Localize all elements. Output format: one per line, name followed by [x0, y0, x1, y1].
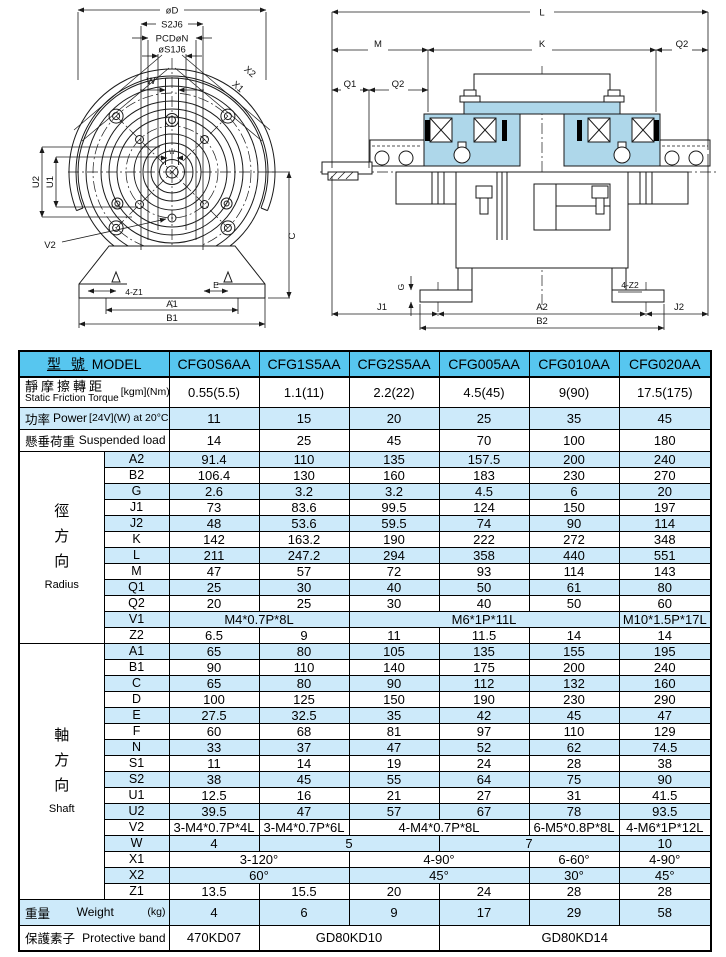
- value-cell: 45: [259, 771, 349, 787]
- table-header-row: 型 號 MODEL CFG0S6AA CFG1S5AA CFG2S5AA CFG…: [19, 351, 711, 377]
- value-cell: 4-90°: [349, 851, 529, 867]
- dimension-row: D100125150190230290: [19, 691, 711, 707]
- value-cell: 45°: [349, 867, 529, 883]
- param-cell: V1: [104, 611, 169, 627]
- value-cell: 440: [529, 547, 619, 563]
- value-cell: 90: [619, 771, 711, 787]
- value-cell: 358: [439, 547, 529, 563]
- value-cell: 91.4: [169, 451, 259, 467]
- value-cell: 12.5: [169, 787, 259, 803]
- value-cell: 32.5: [259, 707, 349, 723]
- value-cell: M4*0.7P*8L: [169, 611, 349, 627]
- dim-label-u2: U2: [31, 176, 42, 188]
- dim-label-4z2: 4-Z2: [621, 280, 639, 290]
- value-cell: M10*1.5P*17L: [619, 611, 711, 627]
- value-cell: 47: [349, 739, 439, 755]
- value-cell: 105: [349, 643, 439, 659]
- value-cell: 20: [169, 595, 259, 611]
- value-cell: 150: [349, 691, 439, 707]
- param-cell: J1: [104, 499, 169, 515]
- value-cell: 0.55(5.5): [169, 377, 259, 407]
- row-label: 懸垂荷重Suspended load: [19, 429, 169, 451]
- dim-label-k: K: [539, 39, 546, 50]
- value-cell: 20: [349, 407, 439, 429]
- value-cell: 45°: [619, 867, 711, 883]
- param-cell: W: [104, 835, 169, 851]
- value-cell: 4.5: [439, 483, 529, 499]
- value-cell: 40: [349, 579, 439, 595]
- spec-row: 功率Power[24V](W) at 20°C111520253545: [19, 407, 711, 429]
- value-cell: 4.5(45): [439, 377, 529, 407]
- dim-label-x2: X2: [242, 64, 258, 80]
- value-cell: 11: [169, 755, 259, 771]
- spec-table: 型 號 MODEL CFG0S6AA CFG1S5AA CFG2S5AA CFG…: [18, 350, 712, 952]
- dim-label-s2j6: S2J6: [161, 20, 183, 31]
- dimension-row: S2384555647590: [19, 771, 711, 787]
- value-cell: 3.2: [259, 483, 349, 499]
- value-cell: 60: [619, 595, 711, 611]
- value-cell: 35: [529, 407, 619, 429]
- value-cell: 114: [619, 515, 711, 531]
- value-cell: 50: [439, 579, 529, 595]
- value-cell: 142: [169, 531, 259, 547]
- value-cell: 200: [529, 659, 619, 675]
- value-cell: 272: [529, 531, 619, 547]
- value-cell: 155: [529, 643, 619, 659]
- value-cell: 240: [619, 659, 711, 675]
- value-cell: 114: [529, 563, 619, 579]
- value-cell: 17: [439, 899, 529, 925]
- value-cell: 42: [439, 707, 529, 723]
- value-cell: 28: [529, 755, 619, 771]
- dimension-row: Q2202530405060: [19, 595, 711, 611]
- dim-label-s1j6: øS1J6: [158, 45, 185, 56]
- value-cell: 35: [349, 707, 439, 723]
- value-cell: 270: [619, 467, 711, 483]
- value-cell: 30: [259, 579, 349, 595]
- value-cell: 175: [439, 659, 529, 675]
- value-cell: 80: [259, 643, 349, 659]
- value-cell: 58: [619, 899, 711, 925]
- dim-label-od: øD: [166, 6, 179, 17]
- value-cell: 38: [619, 755, 711, 771]
- value-cell: 65: [169, 675, 259, 691]
- dimension-row: 徑方向RadiusA291.4110135157.5200240: [19, 451, 711, 467]
- dimension-row: Z113.515.520242828: [19, 883, 711, 899]
- value-cell: 47: [169, 563, 259, 579]
- dimension-row: Q1253040506180: [19, 579, 711, 595]
- value-cell: 70: [439, 429, 529, 451]
- protective-band-row: 保護素子Protective band470KD07GD80KD10GD80KD…: [19, 925, 711, 951]
- dim-label-g: G: [396, 284, 406, 291]
- dim-label-m: M: [374, 39, 382, 50]
- dim-label-v2: V2: [44, 240, 56, 251]
- section-label: 徑方向Radius: [19, 451, 104, 643]
- value-cell: 28: [619, 883, 711, 899]
- value-cell: 68: [259, 723, 349, 739]
- value-cell: 21: [349, 787, 439, 803]
- value-cell: 294: [349, 547, 439, 563]
- value-cell: 93.5: [619, 803, 711, 819]
- value-cell: 74: [439, 515, 529, 531]
- value-cell: 230: [529, 691, 619, 707]
- value-cell: 230: [529, 467, 619, 483]
- value-cell: 124: [439, 499, 529, 515]
- side-view-labels: L M K Q2 Q1 Q2 G J1 A2 4-Z2 J2 B2: [344, 8, 689, 328]
- value-cell: 16: [259, 787, 349, 803]
- model-column-header: CFG020AA: [619, 351, 711, 377]
- param-cell: E: [104, 707, 169, 723]
- param-cell: K: [104, 531, 169, 547]
- value-cell: 190: [439, 691, 529, 707]
- value-cell: 90: [349, 675, 439, 691]
- dimension-row: U239.54757677893.5: [19, 803, 711, 819]
- value-cell: 9: [259, 627, 349, 643]
- value-cell: 106.4: [169, 467, 259, 483]
- param-cell: L: [104, 547, 169, 563]
- value-cell: 61: [529, 579, 619, 595]
- dimension-row: M47577293114143: [19, 563, 711, 579]
- param-cell: F: [104, 723, 169, 739]
- model-column-header: CFG005AA: [439, 351, 529, 377]
- value-cell: 74.5: [619, 739, 711, 755]
- param-cell: G: [104, 483, 169, 499]
- value-cell: 112: [439, 675, 529, 691]
- dimension-row: C658090112132160: [19, 675, 711, 691]
- value-cell: 30: [349, 595, 439, 611]
- value-cell: 83.6: [259, 499, 349, 515]
- value-cell: 190: [349, 531, 439, 547]
- param-cell: J2: [104, 515, 169, 531]
- dimension-row: 軸方向ShaftA16580105135155195: [19, 643, 711, 659]
- value-cell: 57: [349, 803, 439, 819]
- dimension-row: J24853.659.57490114: [19, 515, 711, 531]
- value-cell: 39.5: [169, 803, 259, 819]
- value-cell: 140: [349, 659, 439, 675]
- value-cell: 163.2: [259, 531, 349, 547]
- weight-row: 重量Weight(kg)469172958: [19, 899, 711, 925]
- param-cell: C: [104, 675, 169, 691]
- param-cell: X1: [104, 851, 169, 867]
- value-cell: 29: [529, 899, 619, 925]
- value-cell: 14: [529, 627, 619, 643]
- dimension-row: Z26.591111.51414: [19, 627, 711, 643]
- value-cell: 11: [169, 407, 259, 429]
- value-cell: 90: [529, 515, 619, 531]
- param-cell: N: [104, 739, 169, 755]
- value-cell: 197: [619, 499, 711, 515]
- dim-label-4z1: 4-Z1: [125, 287, 143, 297]
- spec-row: 靜摩擦轉距Static Friction Torque[kgm](Nm)0.55…: [19, 377, 711, 407]
- value-cell: 6-60°: [529, 851, 619, 867]
- value-cell: 50: [529, 595, 619, 611]
- value-cell: 110: [529, 723, 619, 739]
- param-cell: Z1: [104, 883, 169, 899]
- model-header-zh: 型 號: [47, 356, 88, 372]
- param-cell: S1: [104, 755, 169, 771]
- value-cell: 110: [259, 451, 349, 467]
- value-cell: 24: [439, 755, 529, 771]
- value-cell: 135: [349, 451, 439, 467]
- param-cell: B1: [104, 659, 169, 675]
- dim-label-c: C: [287, 232, 298, 239]
- value-cell: 180: [619, 429, 711, 451]
- dimension-row: B190110140175200240: [19, 659, 711, 675]
- value-cell: 17.5(175): [619, 377, 711, 407]
- value-cell: 72: [349, 563, 439, 579]
- dim-label-q1: Q1: [344, 79, 357, 90]
- dim-label-x1: X1: [230, 79, 246, 95]
- value-cell: 25: [169, 579, 259, 595]
- model-column-header: CFG2S5AA: [349, 351, 439, 377]
- value-cell: 67: [439, 803, 529, 819]
- value-cell: GD80KD14: [439, 925, 711, 951]
- value-cell: 125: [259, 691, 349, 707]
- value-cell: 200: [529, 451, 619, 467]
- value-cell: 3.2: [349, 483, 439, 499]
- value-cell: 47: [619, 707, 711, 723]
- value-cell: 41.5: [619, 787, 711, 803]
- dim-label-u1: U1: [45, 176, 56, 188]
- value-cell: 75: [529, 771, 619, 787]
- value-cell: 135: [439, 643, 529, 659]
- value-cell: 100: [169, 691, 259, 707]
- value-cell: 45: [619, 407, 711, 429]
- side-view-drawing: L M K Q2 Q1 Q2 G J1 A2 4-Z2 J2 B2: [312, 0, 724, 348]
- value-cell: 99.5: [349, 499, 439, 515]
- param-cell: Z2: [104, 627, 169, 643]
- dim-label-l: L: [539, 8, 544, 19]
- param-cell: U1: [104, 787, 169, 803]
- model-column-header: CFG010AA: [529, 351, 619, 377]
- dimension-row: L211247.2294358440551: [19, 547, 711, 563]
- value-cell: 52: [439, 739, 529, 755]
- value-cell: 6: [259, 899, 349, 925]
- dimension-row: V1M4*0.7P*8LM6*1P*11LM10*1.5P*17L: [19, 611, 711, 627]
- value-cell: 14: [169, 429, 259, 451]
- value-cell: 20: [349, 883, 439, 899]
- value-cell: 60: [169, 723, 259, 739]
- value-cell: 47: [259, 803, 349, 819]
- value-cell: 240: [619, 451, 711, 467]
- param-cell: V2: [104, 819, 169, 835]
- value-cell: GD80KD10: [259, 925, 439, 951]
- dimension-row: U112.51621273141.5: [19, 787, 711, 803]
- dimension-row: J17383.699.5124150197: [19, 499, 711, 515]
- value-cell: 73: [169, 499, 259, 515]
- value-cell: 2.2(22): [349, 377, 439, 407]
- value-cell: 3-M4*0.7P*6L: [259, 819, 349, 835]
- value-cell: 4: [169, 835, 259, 851]
- assembly-body: [322, 74, 710, 302]
- value-cell: 222: [439, 531, 529, 547]
- value-cell: 93: [439, 563, 529, 579]
- value-cell: 9: [349, 899, 439, 925]
- value-cell: 45: [529, 707, 619, 723]
- dimension-row: F60688197110129: [19, 723, 711, 739]
- dim-label-j2: J2: [674, 302, 684, 313]
- value-cell: 30°: [529, 867, 619, 883]
- value-cell: 9(90): [529, 377, 619, 407]
- value-cell: 45: [349, 429, 439, 451]
- value-cell: 211: [169, 547, 259, 563]
- dim-label-j1: J1: [377, 302, 387, 313]
- value-cell: 348: [619, 531, 711, 547]
- row-label: 靜摩擦轉距Static Friction Torque[kgm](Nm): [19, 377, 169, 407]
- value-cell: 65: [169, 643, 259, 659]
- param-cell: S2: [104, 771, 169, 787]
- value-cell: 78: [529, 803, 619, 819]
- value-cell: 24: [439, 883, 529, 899]
- dim-label-pcdn: PCDøN: [156, 34, 189, 45]
- dimension-row: V23-M4*0.7P*4L3-M4*0.7P*6L4-M4*0.7P*8L6-…: [19, 819, 711, 835]
- model-header-en: MODEL: [92, 356, 142, 372]
- param-cell: D: [104, 691, 169, 707]
- param-cell: X2: [104, 867, 169, 883]
- param-cell: A2: [104, 451, 169, 467]
- value-cell: 6-M5*0.8P*8L: [529, 819, 619, 835]
- value-cell: 60°: [169, 867, 349, 883]
- dim-label-q2-right: Q2: [676, 39, 689, 50]
- value-cell: 6.5: [169, 627, 259, 643]
- value-cell: 38: [169, 771, 259, 787]
- dimension-row: X260°45°30°45°: [19, 867, 711, 883]
- param-cell: M: [104, 563, 169, 579]
- value-cell: 195: [619, 643, 711, 659]
- value-cell: 1.1(11): [259, 377, 349, 407]
- dim-label-e: E: [213, 280, 219, 290]
- dim-label-q2-left: Q2: [392, 79, 405, 90]
- value-cell: 11: [349, 627, 439, 643]
- spec-row: 懸垂荷重Suspended load14254570100180: [19, 429, 711, 451]
- value-cell: 157.5: [439, 451, 529, 467]
- param-cell: A1: [104, 643, 169, 659]
- value-cell: 3-M4*0.7P*4L: [169, 819, 259, 835]
- value-cell: 40: [439, 595, 529, 611]
- value-cell: 25: [259, 595, 349, 611]
- value-cell: 11.5: [439, 627, 529, 643]
- row-label: 保護素子Protective band: [19, 925, 169, 951]
- value-cell: 48: [169, 515, 259, 531]
- value-cell: 37: [259, 739, 349, 755]
- value-cell: 81: [349, 723, 439, 739]
- value-cell: 13.5: [169, 883, 259, 899]
- value-cell: 64: [439, 771, 529, 787]
- value-cell: 28: [529, 883, 619, 899]
- dimension-lines: [332, 12, 708, 330]
- value-cell: 31: [529, 787, 619, 803]
- catalog-page: øD S2J6 PCDøN øS1J6 W W X2 X1 U2 U1 V2 C…: [0, 0, 726, 957]
- param-cell: B2: [104, 467, 169, 483]
- dimension-row: N333747526274.5: [19, 739, 711, 755]
- value-cell: 160: [619, 675, 711, 691]
- dimension-row: G2.63.23.24.5620: [19, 483, 711, 499]
- value-cell: 129: [619, 723, 711, 739]
- value-cell: 551: [619, 547, 711, 563]
- value-cell: 7: [439, 835, 619, 851]
- value-cell: 130: [259, 467, 349, 483]
- dim-label-a2: A2: [536, 302, 548, 313]
- dimension-row: W45710: [19, 835, 711, 851]
- dimension-row: B2106.4130160183230270: [19, 467, 711, 483]
- value-cell: 4: [169, 899, 259, 925]
- value-cell: 25: [259, 429, 349, 451]
- value-cell: 132: [529, 675, 619, 691]
- value-cell: 290: [619, 691, 711, 707]
- value-cell: M6*1P*11L: [349, 611, 619, 627]
- dim-label-w: W: [147, 76, 156, 87]
- value-cell: 100: [529, 429, 619, 451]
- value-cell: 19: [349, 755, 439, 771]
- model-column-header: CFG0S6AA: [169, 351, 259, 377]
- param-cell: Q2: [104, 595, 169, 611]
- value-cell: 143: [619, 563, 711, 579]
- value-cell: 470KD07: [169, 925, 259, 951]
- value-cell: 4-M4*0.7P*8L: [349, 819, 529, 835]
- value-cell: 57: [259, 563, 349, 579]
- dim-label-b1: B1: [166, 313, 178, 324]
- value-cell: 27: [439, 787, 529, 803]
- value-cell: 25: [439, 407, 529, 429]
- value-cell: 15: [259, 407, 349, 429]
- mounting-base: [79, 246, 265, 298]
- value-cell: 14: [259, 755, 349, 771]
- dimension-row: X13-120°4-90°6-60°4-90°: [19, 851, 711, 867]
- value-cell: 97: [439, 723, 529, 739]
- value-cell: 62: [529, 739, 619, 755]
- value-cell: 80: [619, 579, 711, 595]
- value-cell: 2.6: [169, 483, 259, 499]
- value-cell: 55: [349, 771, 439, 787]
- value-cell: 160: [349, 467, 439, 483]
- row-label: 重量Weight(kg): [19, 899, 169, 925]
- section-label: 軸方向Shaft: [19, 643, 104, 899]
- value-cell: 27.5: [169, 707, 259, 723]
- value-cell: 80: [259, 675, 349, 691]
- value-cell: 10: [619, 835, 711, 851]
- dim-label-a1: A1: [166, 299, 178, 310]
- dim-label-b2: B2: [536, 316, 548, 327]
- value-cell: 15.5: [259, 883, 349, 899]
- value-cell: 4-M6*1P*12L: [619, 819, 711, 835]
- value-cell: 53.6: [259, 515, 349, 531]
- model-header: 型 號 MODEL: [19, 351, 169, 377]
- param-cell: U2: [104, 803, 169, 819]
- row-label: 功率Power[24V](W) at 20°C: [19, 407, 169, 429]
- value-cell: 4-90°: [619, 851, 711, 867]
- value-cell: 110: [259, 659, 349, 675]
- dimension-row: E27.532.535424547: [19, 707, 711, 723]
- dim-label-w-small: W: [169, 150, 175, 156]
- value-cell: 14: [619, 627, 711, 643]
- param-cell: Q1: [104, 579, 169, 595]
- dimension-row: K142163.2190222272348: [19, 531, 711, 547]
- value-cell: 183: [439, 467, 529, 483]
- front-view-drawing: øD S2J6 PCDøN øS1J6 W W X2 X1 U2 U1 V2 C…: [12, 0, 314, 348]
- value-cell: 20: [619, 483, 711, 499]
- value-cell: 33: [169, 739, 259, 755]
- value-cell: 150: [529, 499, 619, 515]
- value-cell: 90: [169, 659, 259, 675]
- value-cell: 5: [259, 835, 439, 851]
- dimension-row: S1111419242838: [19, 755, 711, 771]
- model-column-header: CFG1S5AA: [259, 351, 349, 377]
- value-cell: 59.5: [349, 515, 439, 531]
- value-cell: 247.2: [259, 547, 349, 563]
- value-cell: 6: [529, 483, 619, 499]
- value-cell: 3-120°: [169, 851, 349, 867]
